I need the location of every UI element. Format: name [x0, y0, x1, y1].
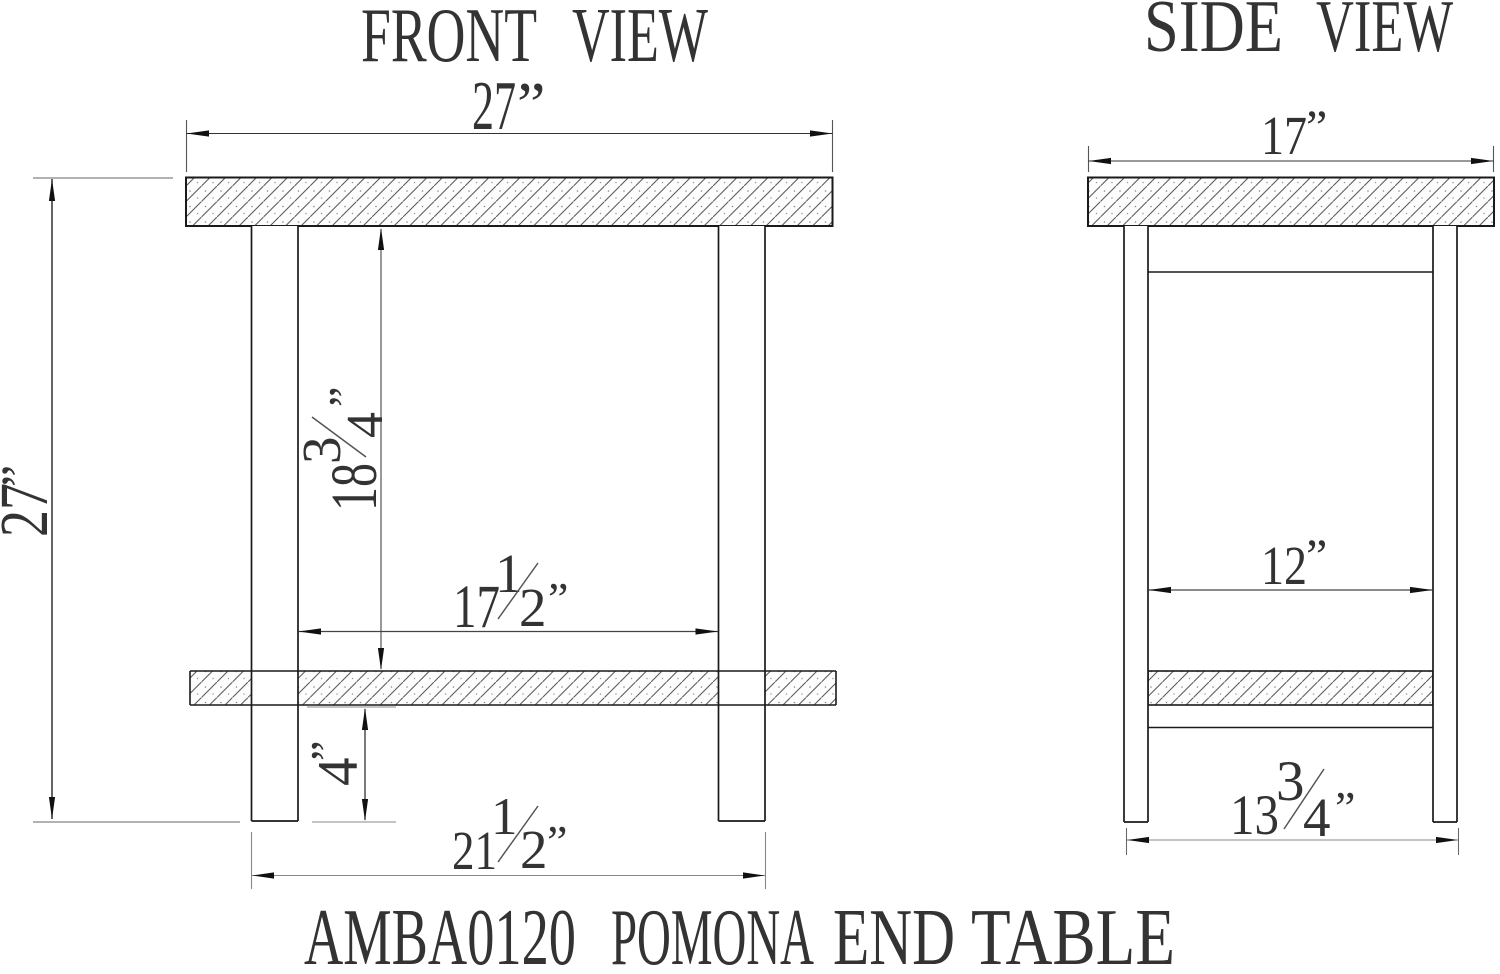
- svg-text:4: 4: [1303, 787, 1331, 848]
- svg-text:”: ”: [517, 69, 545, 140]
- svg-text:18: 18: [318, 463, 391, 511]
- svg-text:SIDE: SIDE: [1144, 0, 1283, 68]
- svg-text:2: 2: [519, 577, 547, 638]
- svg-text:1: 1: [491, 788, 518, 846]
- svg-text:17: 17: [1261, 105, 1307, 166]
- svg-text:”: ”: [548, 573, 568, 624]
- svg-text:”: ”: [1306, 101, 1327, 154]
- svg-text:”: ”: [1335, 782, 1355, 833]
- svg-text:FRONT: FRONT: [361, 0, 537, 78]
- svg-text:4: 4: [337, 412, 394, 438]
- svg-text:POMONA: POMONA: [611, 894, 814, 974]
- svg-text:VIEW: VIEW: [572, 0, 708, 78]
- svg-text:27: 27: [0, 483, 62, 537]
- svg-text:12: 12: [1261, 535, 1307, 596]
- svg-text:END: END: [833, 894, 955, 974]
- svg-text:”: ”: [301, 741, 352, 761]
- svg-text:2: 2: [520, 819, 548, 880]
- svg-text:”: ”: [547, 816, 567, 867]
- svg-text:AMBA0120: AMBA0120: [304, 894, 576, 974]
- svg-text:VIEW: VIEW: [1316, 0, 1453, 68]
- svg-text:”: ”: [0, 465, 46, 487]
- svg-text:13: 13: [1230, 784, 1279, 847]
- svg-text:”: ”: [1306, 530, 1327, 583]
- svg-text:”: ”: [319, 387, 370, 407]
- svg-text:17: 17: [453, 574, 500, 641]
- svg-text:TABLE: TABLE: [971, 894, 1175, 974]
